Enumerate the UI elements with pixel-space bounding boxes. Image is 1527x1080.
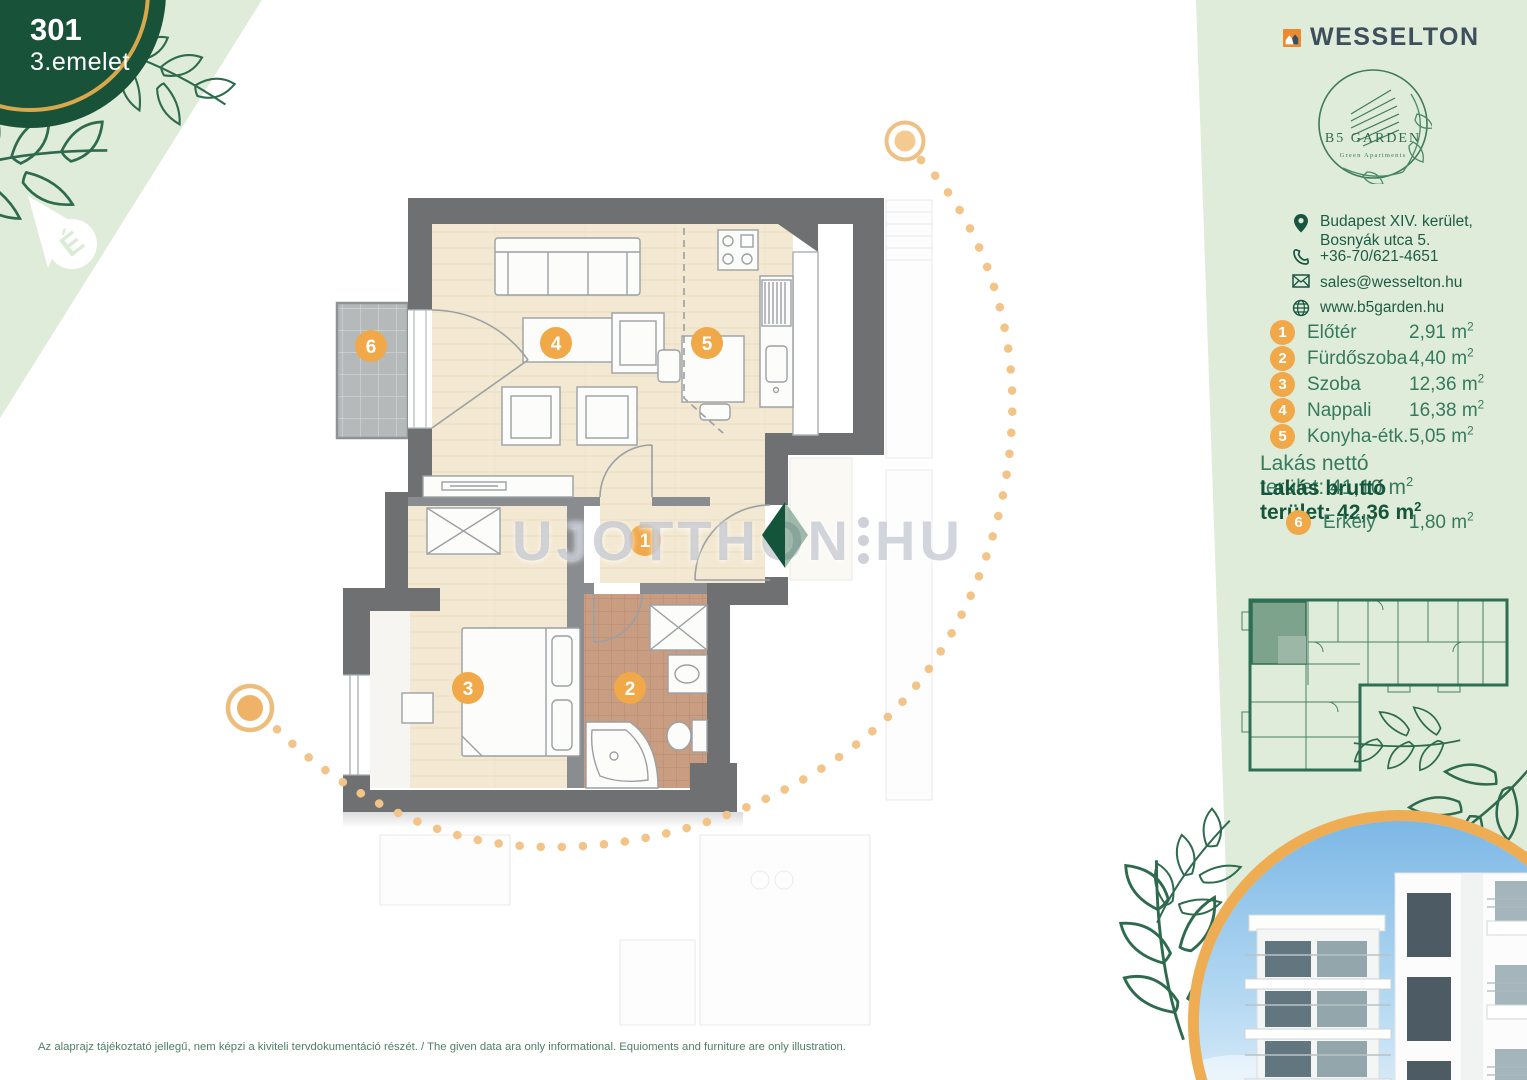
plan-badge-4: 4 [540, 327, 572, 359]
watermark-suffix: HU [875, 508, 964, 573]
contact-phone: +36-70/621-4651 [1292, 247, 1439, 266]
location-pin-icon [1292, 213, 1310, 233]
disclaimer-text: Az alaprajz tájékoztató jellegű, nem kép… [38, 1041, 846, 1053]
project-logo: B5 GARDEN Green Apartments [1314, 64, 1432, 184]
svg-text:4: 4 [551, 334, 562, 355]
contact-email: sales@wesselton.hu [1292, 273, 1462, 292]
watermark: UJOTTHON HU [512, 508, 964, 573]
room-badge: 3 [1270, 372, 1295, 397]
plan-badge-3: 3 [452, 672, 484, 704]
armchair-2 [577, 387, 637, 445]
tv-stand [423, 476, 573, 497]
bedside-table [402, 693, 433, 723]
photo-left-tower [1245, 915, 1391, 1080]
room-badge: 6 [1286, 510, 1311, 535]
room-row-3: 3 Szoba 12,36 m2 [1270, 372, 1495, 397]
contact-address: Budapest XIV. kerület,Bosnyák utca 5. [1292, 212, 1473, 251]
globe-icon [1292, 299, 1310, 317]
svg-text:2: 2 [625, 679, 636, 700]
shaft-box [650, 605, 707, 650]
stove [718, 230, 758, 270]
room-row-4: 4 Nappali 16,38 m2 [1270, 398, 1495, 423]
envelope-icon [1292, 274, 1310, 288]
balcony-floor [337, 303, 408, 438]
armchair-3 [612, 313, 664, 373]
phone-icon [1292, 248, 1310, 266]
room-badge: 4 [1270, 398, 1295, 423]
unit-number: 301 [30, 12, 82, 48]
plan-shadow [343, 812, 743, 828]
svg-text:3: 3 [463, 679, 474, 700]
building-overview-plan [1238, 592, 1516, 792]
watermark-dots-icon [858, 517, 869, 564]
project-logo-subtitle: Green Apartments [1340, 152, 1407, 159]
svg-text:6: 6 [366, 337, 377, 358]
kitchen-counter [760, 276, 793, 407]
photo-right-building [1395, 873, 1527, 1080]
washbasin [668, 655, 707, 693]
balcony-row: 6 Erkély 1,80 m2 [1286, 510, 1511, 535]
plan-badge-6: 6 [355, 330, 387, 362]
toilet [667, 720, 707, 752]
project-logo-title: B5 GARDEN [1325, 131, 1421, 146]
plan-badge-2: 2 [614, 672, 646, 704]
flyer-page: É 301 3.emelet [0, 0, 1527, 1080]
brand-logo: WESSELTON [1283, 20, 1480, 55]
svg-text:5: 5 [702, 334, 713, 355]
kitchen-light-wall [793, 252, 818, 435]
room-badge: 2 [1270, 346, 1295, 371]
room-badge: 5 [1270, 424, 1295, 449]
armchair-1 [502, 387, 560, 445]
room-row-1: 1 Előtér 2,91 m2 [1270, 320, 1495, 345]
contact-website: www.b5garden.hu [1292, 298, 1444, 317]
wesselton-logo-icon [1283, 21, 1301, 55]
room-row-2: 2 Fürdőszoba 4,40 m2 [1270, 346, 1495, 371]
brand-name: WESSELTON [1310, 23, 1480, 52]
floor-label: 3.emelet [30, 48, 130, 77]
room-row-5: 5 Konyha-étk. 5,05 m2 [1270, 424, 1495, 449]
plan-badge-5: 5 [691, 327, 723, 359]
sofa [495, 238, 640, 295]
floor-plan: 1 2 3 4 5 6 [330, 185, 950, 1035]
room-badge: 1 [1270, 320, 1295, 345]
wardrobe [427, 508, 500, 554]
